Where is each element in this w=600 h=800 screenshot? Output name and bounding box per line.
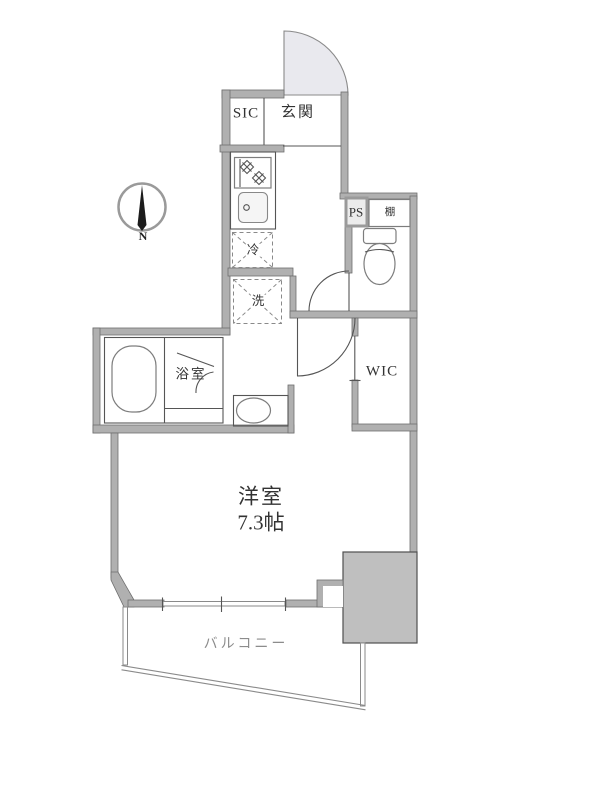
entrance-door-swing-icon bbox=[284, 31, 348, 95]
bathtub bbox=[112, 346, 156, 412]
wall-bottom-left bbox=[128, 600, 164, 607]
balcony-window bbox=[163, 602, 285, 607]
balcony-edge-right bbox=[361, 643, 366, 706]
label-refrigerator: 冷 bbox=[246, 244, 261, 257]
wall-room-left bbox=[111, 433, 118, 578]
structure-block bbox=[343, 552, 417, 643]
balcony-edge-left bbox=[123, 607, 128, 665]
room-door-swing-icon bbox=[297, 318, 355, 376]
wall-wic-left-bottom bbox=[352, 380, 358, 427]
label-washer: 洗 bbox=[251, 295, 266, 308]
wall-bath-left bbox=[93, 328, 100, 433]
wall-bath-top bbox=[93, 328, 230, 335]
wall-right-outer bbox=[410, 196, 417, 554]
toilet-door-swing-icon bbox=[309, 271, 349, 311]
label-main-room: 洋室 bbox=[238, 487, 284, 508]
wall-kitchen-powder bbox=[228, 268, 293, 276]
wall-top bbox=[222, 90, 284, 98]
label-bathroom: 浴室 bbox=[176, 367, 207, 381]
floor-plan: SIC 玄関 PS 棚 冷 洗 浴室 WIC 洋室 7.3帖 バルコニー N bbox=[0, 0, 600, 800]
bath-door-fold-line bbox=[177, 353, 214, 367]
wall-main-horizontal bbox=[290, 311, 417, 318]
label-pipe-space: PS bbox=[349, 206, 363, 219]
label-shelf: 棚 bbox=[385, 208, 396, 219]
label-walk-in-closet: WIC bbox=[366, 365, 398, 380]
wall-powder-right bbox=[288, 385, 294, 433]
wall-entrance-right bbox=[341, 92, 348, 196]
label-entrance: 玄関 bbox=[281, 106, 315, 121]
label-main-room-size: 7.3帖 bbox=[237, 513, 284, 534]
compass-icon bbox=[119, 184, 166, 232]
wall-sic-bottom bbox=[220, 145, 284, 152]
toilet-tank bbox=[364, 229, 397, 244]
kitchen-sink bbox=[239, 193, 268, 223]
washbasin-bowl bbox=[237, 398, 271, 423]
label-shoe-closet: SIC bbox=[233, 107, 259, 122]
label-compass-north: N bbox=[139, 230, 148, 242]
balcony-railing bbox=[122, 666, 366, 710]
wall-left-upper bbox=[222, 90, 230, 335]
label-balcony: バルコニー bbox=[204, 638, 289, 652]
wall-wic-bottom bbox=[352, 424, 417, 431]
pillar-notch-inner bbox=[323, 586, 343, 607]
wall-toilet-left bbox=[345, 225, 352, 273]
